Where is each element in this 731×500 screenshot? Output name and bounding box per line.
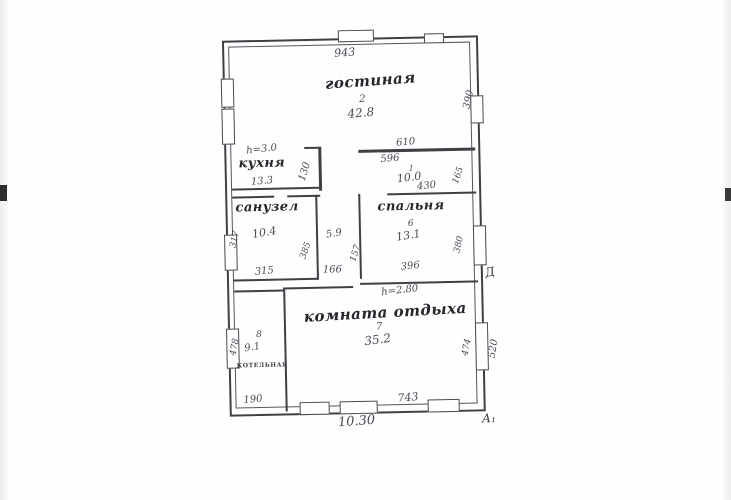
window-symbol (475, 322, 489, 370)
room-number-boiler: 8 (256, 330, 262, 340)
window-symbol (473, 225, 487, 265)
window-symbol (300, 402, 330, 416)
axis-mark-right: Д (484, 264, 496, 280)
window-symbol (221, 108, 235, 144)
room-label-boiler: котельная (237, 361, 288, 369)
floor-plan: 943 гостиная 2 42.8 h=3.0 кухня 13.3 130… (206, 19, 505, 445)
scan-mark-right (725, 188, 731, 201)
room-label-bath: санузел (235, 199, 298, 215)
room-label-kitchen: кухня (238, 155, 285, 171)
scanned-page: 943 гостиная 2 42.8 h=3.0 кухня 13.3 130… (0, 0, 731, 500)
dimension-top-wall: 943 (334, 45, 356, 60)
window-symbol (424, 33, 444, 43)
dimension-hall-bottom: 430 (417, 179, 437, 192)
axis-mark-bottom-right: А₁ (482, 411, 496, 425)
scan-mark-left (0, 185, 7, 201)
page-edge-left (0, 0, 10, 500)
dimension-lounge-bottom: 743 (397, 390, 419, 405)
dimension-bedroom-bottom: 396 (400, 260, 420, 273)
porch-symbol (338, 30, 374, 43)
room-label-bedroom: спальня (377, 198, 445, 214)
dimension-right-outer: 520 (487, 338, 501, 359)
dimension-boiler-bottom: 190 (243, 393, 263, 406)
page-edge-right (721, 0, 731, 500)
window-symbol (221, 79, 235, 108)
dimension-total-bottom: 10.30 (337, 413, 375, 431)
window-symbol (428, 399, 460, 413)
room-number-living: 2 (359, 94, 366, 105)
dimension-corridor-bottom: 166 (323, 264, 342, 275)
dimension-bath-bottom: 315 (254, 265, 274, 278)
room-area-kitchen: 13.3 (250, 175, 273, 188)
room-area-living: 42.8 (347, 105, 375, 121)
dimension-hall-inner: 596 (380, 152, 400, 165)
dimension-hall-top: 610 (396, 136, 416, 149)
